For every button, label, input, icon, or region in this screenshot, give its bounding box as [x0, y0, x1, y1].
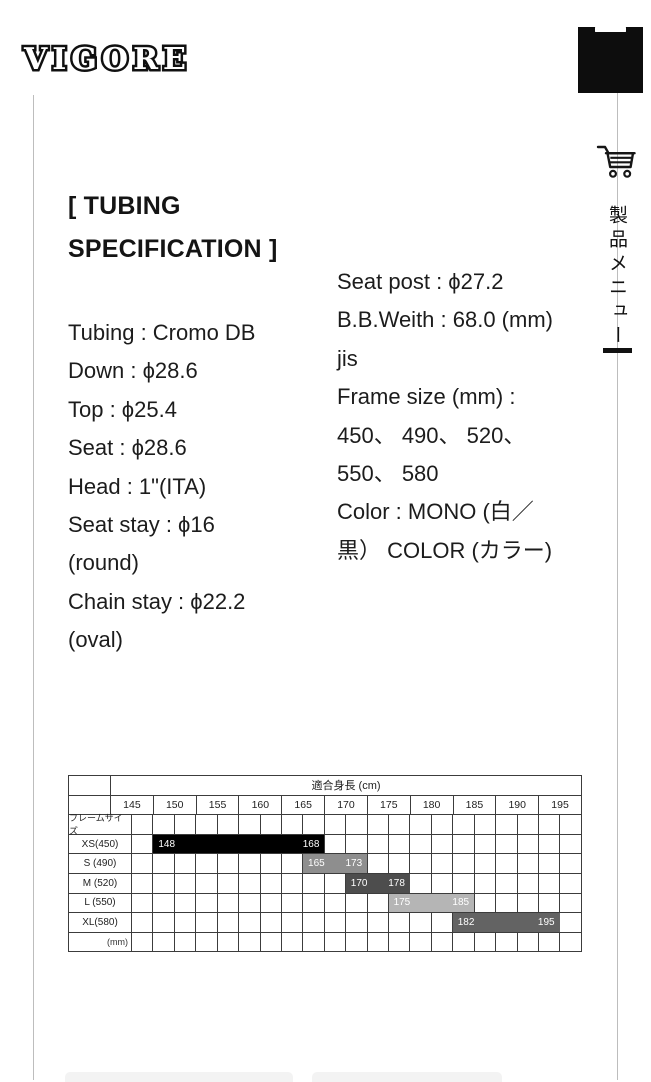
grid-cell	[174, 874, 195, 893]
frame-size-label: フレームサイズ	[69, 815, 132, 834]
grid-cell	[559, 815, 580, 834]
grid-cell	[195, 854, 216, 873]
grid-cell	[152, 913, 173, 932]
grid-cell	[345, 913, 366, 932]
grid-cell	[281, 854, 302, 873]
grid-cell	[345, 815, 366, 834]
grid-cell	[345, 835, 366, 854]
page-title-line1: [ TUBING	[68, 185, 277, 228]
height-tick: 195	[538, 796, 581, 815]
height-range-bar: 148 168	[153, 835, 324, 854]
height-range-bar: 175 185	[389, 894, 475, 913]
bar-end-value: 185	[452, 897, 469, 908]
grid-cell	[538, 894, 559, 913]
grid-cell	[132, 894, 152, 913]
grid-cell	[217, 933, 238, 952]
height-tick: 170	[324, 796, 367, 815]
grid-cell	[281, 815, 302, 834]
grid-cell	[152, 815, 173, 834]
tubing-spec-right-column: Seat post : ϕ27.2 B.B.Weith : 68.0 (mm) …	[337, 263, 589, 570]
grid-cell	[238, 874, 259, 893]
grid-cell	[302, 913, 323, 932]
height-tick: 160	[238, 796, 281, 815]
grid-cell	[495, 894, 516, 913]
bar-start-value: 182	[458, 917, 475, 928]
row-label: L (550)	[69, 894, 132, 913]
row-label: XS(450)	[69, 835, 132, 854]
grid-cell	[132, 933, 152, 952]
spec-line: Tubing : Cromo DB	[68, 314, 330, 352]
grid-cell	[388, 913, 409, 932]
grid-cell	[217, 815, 238, 834]
grid-cell	[495, 835, 516, 854]
height-range-bar: 165 173	[303, 854, 367, 873]
grid-cell	[281, 874, 302, 893]
grid-cell	[388, 835, 409, 854]
spec-line: 黒） COLOR (カラー)	[337, 532, 589, 570]
grid-cell	[324, 933, 345, 952]
grid-cell	[367, 815, 388, 834]
spec-line: Seat : ϕ28.6	[68, 429, 330, 467]
grid-cell	[517, 835, 538, 854]
grid-cell	[517, 874, 538, 893]
grid-cell	[195, 874, 216, 893]
grid-cell	[195, 933, 216, 952]
grid-cell	[345, 933, 366, 952]
row-grid: 170 178	[132, 874, 581, 893]
grid-cell	[260, 815, 281, 834]
grid-cell	[281, 894, 302, 913]
row-label: XL(580)	[69, 913, 132, 932]
grid-cell	[217, 913, 238, 932]
grid-cell	[217, 874, 238, 893]
grid-cell	[260, 894, 281, 913]
grid-cell	[474, 933, 495, 952]
bar-end-value: 168	[303, 839, 320, 850]
grid-cell	[324, 874, 345, 893]
table-row-l: L (550) 175 185	[69, 894, 581, 914]
spec-line: (oval)	[68, 621, 330, 659]
grid-cell	[559, 933, 580, 952]
grid-cell	[495, 933, 516, 952]
spec-line: Frame size (mm) :	[337, 378, 589, 416]
grid-cell	[517, 894, 538, 913]
table-row-m: M (520) 170 178	[69, 874, 581, 894]
grid-cell	[132, 874, 152, 893]
grid-cell	[367, 933, 388, 952]
grid-cell	[238, 933, 259, 952]
grid-cell	[260, 854, 281, 873]
height-tick: 165	[281, 796, 324, 815]
grid-cell	[474, 894, 495, 913]
bar-start-value: 175	[394, 897, 411, 908]
grid-cell	[409, 913, 430, 932]
grid-cell	[302, 815, 323, 834]
grid-cell	[367, 854, 388, 873]
grid-cell	[538, 815, 559, 834]
product-menu-vertical-link[interactable]: 製品メニュー	[604, 205, 630, 349]
grid-cell	[345, 894, 366, 913]
row-grid: 175 185	[132, 894, 581, 913]
grid-cell	[260, 913, 281, 932]
grid-cell	[260, 874, 281, 893]
unit-label: (mm)	[69, 933, 132, 952]
grid-cell	[281, 913, 302, 932]
grid-cell	[302, 894, 323, 913]
grid-cell	[452, 815, 473, 834]
spec-line: jis	[337, 340, 589, 378]
grid-cell	[474, 815, 495, 834]
grid-cell	[559, 854, 580, 873]
shopping-cart-icon	[593, 140, 639, 186]
grid-cell	[324, 913, 345, 932]
height-tick: 190	[495, 796, 538, 815]
table-row-xl: XL(580) 182 195	[69, 913, 581, 933]
grid-cell	[538, 854, 559, 873]
grid-cell	[324, 835, 345, 854]
row-label: M (520)	[69, 874, 132, 893]
grid-cell	[559, 835, 580, 854]
spec-line: (round)	[68, 544, 330, 582]
grid-cell	[431, 913, 452, 932]
grid-cell	[238, 913, 259, 932]
unit-row: (mm)	[69, 933, 581, 952]
height-tick: 180	[410, 796, 453, 815]
height-tick: 155	[196, 796, 239, 815]
grid-cell	[495, 815, 516, 834]
spec-line: 450、 490、 520、	[337, 417, 589, 455]
grid-cell	[517, 815, 538, 834]
row-grid: 182 195	[132, 913, 581, 932]
hamburger-menu-button[interactable]	[578, 27, 643, 93]
grid-cell	[132, 854, 152, 873]
bar-start-value: 148	[158, 839, 175, 850]
page-left-border-line	[33, 95, 34, 1080]
table-row-s: S (490) 165 173	[69, 854, 581, 874]
grid-cell	[517, 933, 538, 952]
grid-cell	[559, 874, 580, 893]
grid-cell	[195, 913, 216, 932]
grid-cell	[260, 933, 281, 952]
grid-cell	[152, 933, 173, 952]
grid-cell	[195, 815, 216, 834]
tubing-spec-left-column: Tubing : Cromo DB Down : ϕ28.6 Top : ϕ25…	[68, 314, 330, 660]
hamburger-icon	[595, 27, 626, 32]
row-grid: 148 168	[132, 835, 581, 854]
grid-cell	[152, 894, 173, 913]
grid-cell	[388, 815, 409, 834]
grid-cell	[431, 854, 452, 873]
grid-cell	[409, 815, 430, 834]
grid-cell	[324, 815, 345, 834]
grid-cell	[474, 835, 495, 854]
bar-end-value: 173	[346, 858, 363, 869]
spec-line: 550、 580	[337, 455, 589, 493]
grid-cell	[302, 933, 323, 952]
grid-cell	[367, 894, 388, 913]
grid-cell	[409, 874, 430, 893]
grid-cell	[538, 835, 559, 854]
page-title-line2: SPECIFICATION ]	[68, 228, 277, 271]
grid-cell	[174, 913, 195, 932]
grid-cell	[132, 835, 152, 854]
grid-cell	[409, 854, 430, 873]
height-header-cells: 145 150 155 160 165 170 175 180 185 190 …	[111, 796, 581, 815]
height-range-bar: 182 195	[453, 913, 560, 932]
row-label: S (490)	[69, 854, 132, 873]
cart-button[interactable]	[593, 140, 639, 186]
grid-cell	[238, 894, 259, 913]
grid-cell	[559, 894, 580, 913]
height-tick: 150	[153, 796, 196, 815]
spec-line: Down : ϕ28.6	[68, 352, 330, 390]
grid-cell	[452, 835, 473, 854]
grid-cell	[431, 835, 452, 854]
spec-line: Seat post : ϕ27.2	[337, 263, 589, 301]
grid-cell	[538, 874, 559, 893]
grid-cell	[174, 854, 195, 873]
grid-cell	[409, 835, 430, 854]
height-tick: 185	[453, 796, 496, 815]
table-title: 適合身長 (cm)	[111, 776, 581, 795]
table-title-row: 適合身長 (cm)	[69, 776, 581, 796]
grid-cell	[174, 815, 195, 834]
bar-end-value: 178	[388, 878, 405, 889]
grid-cell	[174, 933, 195, 952]
grid-cell	[495, 874, 516, 893]
grid-cell	[238, 815, 259, 834]
frame-size-label-row: フレームサイズ	[69, 815, 581, 835]
grid-cell	[452, 854, 473, 873]
grid-cell	[474, 874, 495, 893]
grid-cell	[238, 854, 259, 873]
grid-cell	[431, 874, 452, 893]
grid-cell	[474, 854, 495, 873]
spec-line: B.B.Weith : 68.0 (mm)	[337, 301, 589, 339]
grid-cell	[495, 854, 516, 873]
grid-cell	[388, 933, 409, 952]
size-chart-table: 適合身長 (cm) 145 150 155 160 165 170 175 18…	[68, 775, 582, 952]
empty-grid	[132, 815, 581, 834]
corner-cell	[69, 776, 111, 795]
grid-cell	[431, 933, 452, 952]
grid-cell	[217, 854, 238, 873]
grid-cell	[324, 894, 345, 913]
bottom-button-left[interactable]	[65, 1072, 293, 1082]
grid-cell	[195, 894, 216, 913]
grid-cell	[132, 815, 152, 834]
spec-line: Chain stay : ϕ22.2	[68, 583, 330, 621]
grid-cell	[538, 933, 559, 952]
menu-line	[603, 348, 632, 353]
empty-grid	[132, 933, 581, 952]
height-tick: 175	[367, 796, 410, 815]
spec-line: Head : 1"(ITA)	[68, 468, 330, 506]
grid-cell	[431, 815, 452, 834]
grid-cell	[409, 933, 430, 952]
grid-cell	[367, 835, 388, 854]
grid-cell	[452, 933, 473, 952]
grid-cell	[388, 854, 409, 873]
spec-line: Color : MONO (白／	[337, 493, 589, 531]
grid-cell	[559, 913, 580, 932]
row-grid: 165 173	[132, 854, 581, 873]
grid-cell	[217, 894, 238, 913]
grid-cell	[132, 913, 152, 932]
grid-cell	[302, 874, 323, 893]
grid-cell	[174, 894, 195, 913]
grid-cell	[281, 933, 302, 952]
spec-line: Top : ϕ25.4	[68, 391, 330, 429]
vigore-logo[interactable]: VIGORE	[24, 42, 191, 77]
grid-cell	[452, 874, 473, 893]
bar-start-value: 170	[351, 878, 368, 889]
height-range-bar: 170 178	[346, 874, 410, 893]
spec-line: Seat stay : ϕ16	[68, 506, 330, 544]
height-header-row: 145 150 155 160 165 170 175 180 185 190 …	[69, 796, 581, 816]
page-title: [ TUBING SPECIFICATION ]	[68, 185, 277, 271]
grid-cell	[152, 854, 173, 873]
grid-cell	[517, 854, 538, 873]
grid-cell	[367, 913, 388, 932]
grid-cell	[152, 874, 173, 893]
bottom-button-right[interactable]	[312, 1072, 502, 1082]
bar-end-value: 195	[538, 917, 555, 928]
bar-start-value: 165	[308, 858, 325, 869]
table-row-xs: XS(450) 148 168	[69, 835, 581, 855]
